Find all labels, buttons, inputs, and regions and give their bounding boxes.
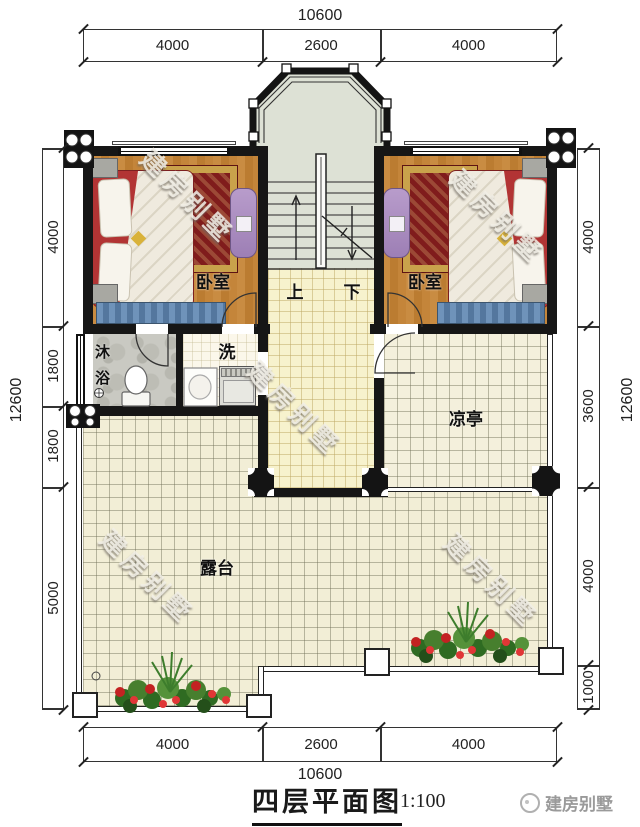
- dim-left-seg-2: 1800: [45, 416, 61, 476]
- brand-logo: 建房别墅: [520, 790, 613, 815]
- dim-bottom-seg-2: 4000: [380, 736, 557, 753]
- door-arcs: [136, 293, 422, 373]
- plan-scale: 1:100: [400, 790, 446, 813]
- label-stairs-up: 上: [280, 278, 310, 303]
- door-bedroom-left: [222, 293, 256, 327]
- dim-left-seg-3: 5000: [45, 568, 61, 628]
- dim-left-total: 12600: [8, 370, 24, 430]
- dim-right-total: 12600: [619, 370, 635, 430]
- column-post-hall-left: [241, 461, 281, 503]
- floor-plan-canvas: 卧室 卧室 上 下 沐浴 洗 凉亭 露台 建房别墅 建房别墅 建房别墅 建房别墅…: [0, 0, 640, 827]
- door-bedroom-right: [388, 293, 422, 327]
- stair-direction-arrows: [292, 196, 372, 260]
- label-terrace: 露台: [182, 554, 252, 579]
- label-pavilion: 凉亭: [431, 405, 501, 430]
- dim-right-seg-2: 4000: [580, 546, 596, 606]
- terrace-drain-icon: [92, 672, 100, 680]
- plan-title: 四层平面图: [252, 780, 402, 826]
- dim-bottom-seg-0: 4000: [83, 736, 262, 753]
- dim-top-seg-2: 4000: [380, 37, 557, 54]
- dim-rung: [43, 708, 63, 710]
- dim-top-total: 10600: [83, 7, 557, 25]
- brand-logo-text: 建房别墅: [545, 790, 613, 815]
- toilet: [122, 366, 150, 406]
- label-wash: 洗: [212, 338, 242, 363]
- label-bedroom-left: 卧室: [178, 268, 248, 293]
- column-symbol-bath: [66, 404, 100, 428]
- column-post-pavilion: [525, 459, 568, 504]
- dim-left-seg-1: 1800: [45, 336, 61, 396]
- label-shower: 沐浴: [94, 340, 111, 391]
- column-symbol-top-right: [546, 128, 576, 168]
- dim-left-seg-0: 4000: [45, 207, 61, 267]
- door-pavilion: [375, 333, 415, 373]
- dim-top-seg-1: 2600: [262, 37, 380, 54]
- sink: [184, 368, 217, 406]
- dim-top-seg-0: 4000: [83, 37, 262, 54]
- column-post-hall-right: [355, 461, 395, 503]
- planter-left: [115, 652, 231, 713]
- label-stairs-down: 下: [337, 278, 367, 303]
- dim-bottom-seg-1: 2600: [262, 736, 380, 753]
- brand-logo-icon: [520, 793, 540, 813]
- dim-right-seg-0: 4000: [580, 207, 596, 267]
- label-bedroom-right: 卧室: [390, 268, 460, 293]
- dim-right-seg-1: 3600: [580, 376, 596, 436]
- door-toilet: [136, 334, 168, 366]
- stair-handrail: [316, 154, 326, 268]
- column-symbol-top-left: [64, 130, 94, 168]
- bay-window: [249, 64, 391, 146]
